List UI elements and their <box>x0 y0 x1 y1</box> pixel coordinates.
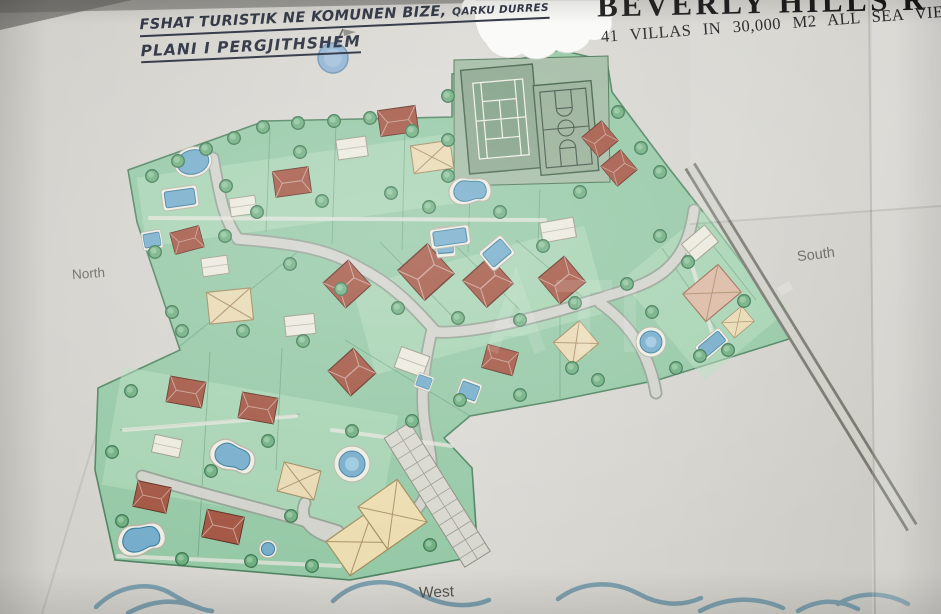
rect-pool <box>161 185 200 212</box>
villa-cross-roof <box>206 288 253 324</box>
villa-white-roof <box>284 313 316 336</box>
round-deck-pool <box>334 446 370 482</box>
site-plan-photo: FSHAT TURISTIK NE KOMUNEN BIZE, QARKU DU… <box>0 0 941 614</box>
villa-white-roof <box>201 255 229 276</box>
basketball-court <box>533 81 599 176</box>
sports-courts <box>454 56 610 186</box>
highway-gap <box>779 285 791 292</box>
site-plan-drawing <box>0 0 941 614</box>
sea-waves <box>96 582 908 613</box>
villa-red-roof <box>238 392 278 424</box>
villa-white-roof <box>336 136 368 160</box>
round-pool <box>636 327 666 357</box>
compass-label-west: West <box>419 583 455 602</box>
villa-red-roof <box>272 167 311 198</box>
tennis-court <box>461 64 542 174</box>
project-title-suffix: QARKU DURRES <box>452 2 549 18</box>
round-pool <box>259 540 277 558</box>
compass-label-north: North <box>72 265 106 282</box>
villa-red-roof <box>166 376 206 408</box>
